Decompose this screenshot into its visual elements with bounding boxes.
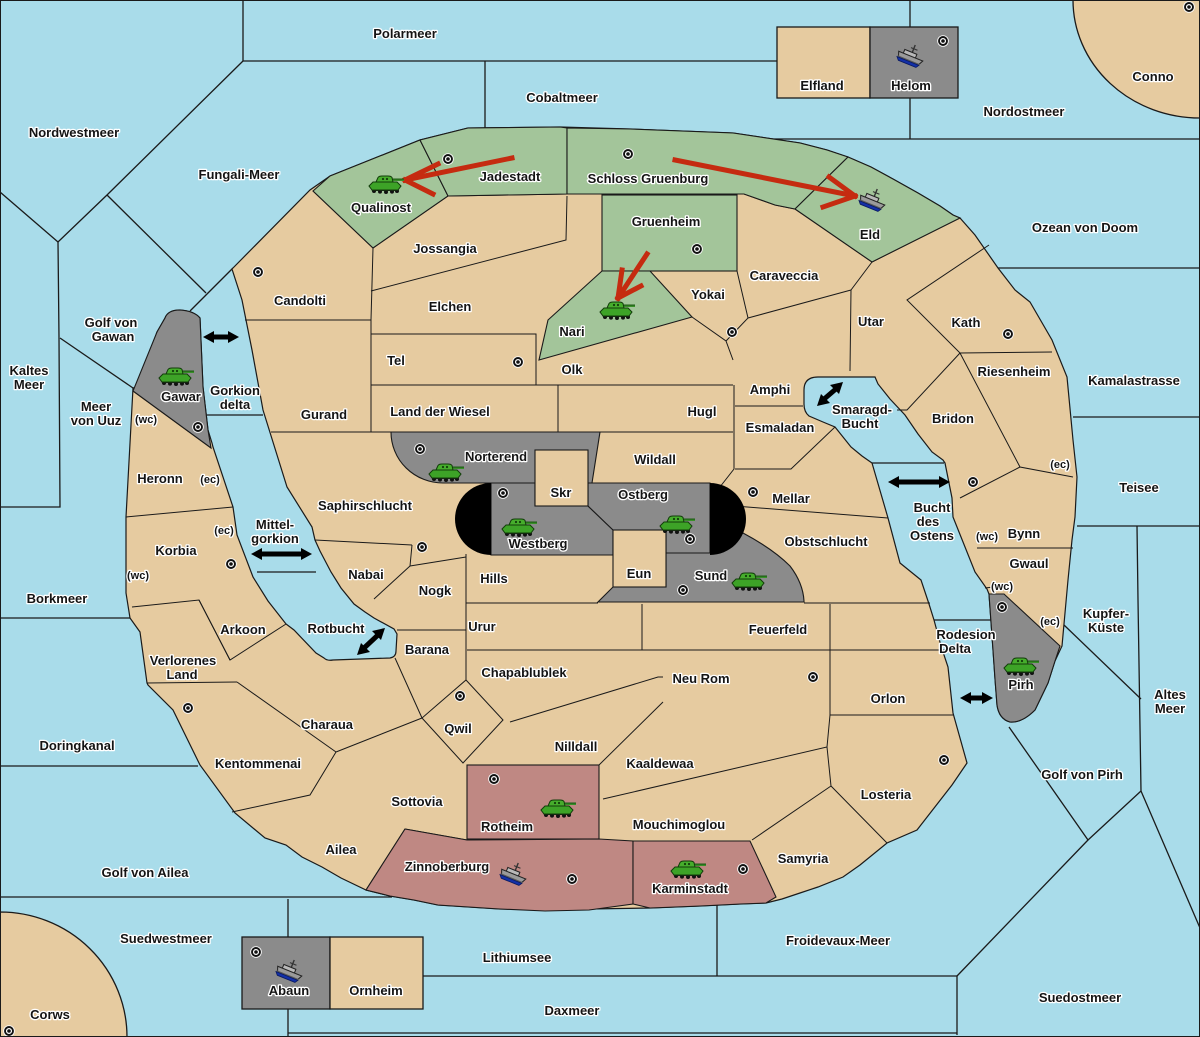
- svg-text:Gawan: Gawan: [92, 329, 135, 344]
- svg-text:Suedostmeer: Suedostmeer: [1039, 990, 1121, 1005]
- svg-text:Elchen: Elchen: [429, 299, 472, 314]
- svg-text:Olk: Olk: [562, 362, 584, 377]
- svg-text:Korbia: Korbia: [155, 543, 197, 558]
- svg-text:Land: Land: [166, 667, 197, 682]
- svg-text:Borkmeer: Borkmeer: [27, 591, 88, 606]
- svg-text:Nordwestmeer: Nordwestmeer: [29, 125, 119, 140]
- svg-text:Rodesion: Rodesion: [936, 627, 995, 642]
- svg-text:Land der Wiesel: Land der Wiesel: [390, 404, 490, 419]
- svg-text:Delta: Delta: [939, 641, 972, 656]
- svg-text:Ornheim: Ornheim: [349, 983, 402, 998]
- svg-text:Jossangia: Jossangia: [413, 241, 477, 256]
- svg-text:Ostens: Ostens: [910, 528, 954, 543]
- svg-text:(ec): (ec): [214, 525, 234, 537]
- svg-text:Obstschlucht: Obstschlucht: [784, 534, 868, 549]
- svg-text:Karminstadt: Karminstadt: [652, 881, 729, 896]
- svg-text:Amphi: Amphi: [750, 382, 790, 397]
- svg-text:Pirh: Pirh: [1008, 677, 1033, 692]
- svg-text:Kaaldewaa: Kaaldewaa: [626, 756, 694, 771]
- svg-text:Rotbucht: Rotbucht: [307, 621, 365, 636]
- svg-text:Cobaltmeer: Cobaltmeer: [526, 90, 598, 105]
- svg-text:Barana: Barana: [405, 642, 450, 657]
- svg-text:Froidevaux-Meer: Froidevaux-Meer: [786, 933, 890, 948]
- svg-text:Teisee: Teisee: [1119, 480, 1159, 495]
- svg-text:Kath: Kath: [952, 315, 981, 330]
- svg-text:Orlon: Orlon: [871, 691, 906, 706]
- svg-text:Bridon: Bridon: [932, 411, 974, 426]
- svg-text:Losteria: Losteria: [861, 787, 912, 802]
- svg-text:Abaun: Abaun: [269, 983, 310, 998]
- svg-text:Eun: Eun: [627, 566, 652, 581]
- svg-text:Schloss Gruenburg: Schloss Gruenburg: [588, 171, 709, 186]
- svg-text:Kupfer-: Kupfer-: [1083, 606, 1129, 621]
- svg-text:(wc): (wc): [127, 570, 149, 582]
- svg-text:Bucht: Bucht: [842, 416, 880, 431]
- svg-text:Qualinost: Qualinost: [351, 200, 412, 215]
- svg-text:Arkoon: Arkoon: [220, 622, 266, 637]
- svg-text:Corws: Corws: [30, 1007, 70, 1022]
- svg-text:Kaltes: Kaltes: [9, 363, 48, 378]
- svg-text:Eld: Eld: [860, 227, 880, 242]
- svg-text:Yokai: Yokai: [691, 287, 725, 302]
- svg-text:Sund: Sund: [695, 568, 728, 583]
- svg-text:Urur: Urur: [468, 619, 495, 634]
- svg-text:des: des: [917, 514, 939, 529]
- svg-text:Gorkion: Gorkion: [210, 383, 260, 398]
- svg-text:Saphirschlucht: Saphirschlucht: [318, 498, 413, 513]
- svg-text:(wc): (wc): [976, 531, 998, 543]
- svg-text:Westberg: Westberg: [509, 536, 568, 551]
- svg-text:Bucht: Bucht: [914, 500, 952, 515]
- svg-text:Küste: Küste: [1088, 620, 1124, 635]
- svg-text:Golf von Ailea: Golf von Ailea: [102, 865, 190, 880]
- svg-text:Ailea: Ailea: [325, 842, 357, 857]
- svg-text:Caraveccia: Caraveccia: [750, 268, 819, 283]
- svg-text:Lithiumsee: Lithiumsee: [483, 950, 552, 965]
- svg-text:Mittel-: Mittel-: [256, 517, 294, 532]
- svg-text:Feuerfeld: Feuerfeld: [749, 622, 808, 637]
- svg-text:Hugl: Hugl: [688, 404, 717, 419]
- svg-text:Nordostmeer: Nordostmeer: [984, 104, 1065, 119]
- svg-text:Gurand: Gurand: [301, 407, 347, 422]
- svg-text:Skr: Skr: [551, 485, 572, 500]
- svg-text:Daxmeer: Daxmeer: [545, 1003, 600, 1018]
- svg-text:Helom: Helom: [891, 78, 931, 93]
- svg-text:Mouchimoglou: Mouchimoglou: [633, 817, 725, 832]
- svg-text:Meer: Meer: [14, 377, 44, 392]
- svg-text:Rotheim: Rotheim: [481, 819, 533, 834]
- svg-text:Elfland: Elfland: [800, 78, 843, 93]
- svg-text:Tel: Tel: [387, 353, 405, 368]
- svg-text:Ostberg: Ostberg: [618, 487, 668, 502]
- svg-text:Nari: Nari: [559, 324, 584, 339]
- svg-text:Golf von Pirh: Golf von Pirh: [1041, 767, 1123, 782]
- svg-text:Golf von: Golf von: [85, 315, 138, 330]
- svg-text:Nogk: Nogk: [419, 583, 452, 598]
- svg-text:delta: delta: [220, 397, 251, 412]
- svg-text:(wc): (wc): [135, 414, 157, 426]
- svg-text:Verlorenes: Verlorenes: [150, 653, 217, 668]
- svg-text:Chapablublek: Chapablublek: [481, 665, 567, 680]
- svg-text:Gawar: Gawar: [161, 389, 201, 404]
- svg-text:Suedwestmeer: Suedwestmeer: [120, 931, 212, 946]
- svg-text:Utar: Utar: [858, 314, 884, 329]
- svg-text:Meer: Meer: [1155, 701, 1185, 716]
- svg-text:Norterend: Norterend: [465, 449, 527, 464]
- svg-text:Qwil: Qwil: [444, 721, 471, 736]
- svg-text:Riesenheim: Riesenheim: [978, 364, 1051, 379]
- svg-text:Meer: Meer: [81, 399, 111, 414]
- svg-text:Mellar: Mellar: [772, 491, 810, 506]
- svg-text:Kentommenai: Kentommenai: [215, 756, 301, 771]
- svg-text:Jadestadt: Jadestadt: [480, 169, 541, 184]
- svg-text:Sottovia: Sottovia: [391, 794, 443, 809]
- svg-text:Zinnoberburg: Zinnoberburg: [405, 859, 490, 874]
- svg-text:Hills: Hills: [480, 571, 507, 586]
- svg-text:(ec): (ec): [200, 474, 220, 486]
- svg-text:Heronn: Heronn: [137, 471, 183, 486]
- svg-text:Altes: Altes: [1154, 687, 1186, 702]
- svg-text:Gruenheim: Gruenheim: [632, 214, 701, 229]
- svg-text:Esmaladan: Esmaladan: [746, 420, 815, 435]
- svg-text:Gwaul: Gwaul: [1009, 556, 1048, 571]
- svg-text:Kamalastrasse: Kamalastrasse: [1088, 373, 1180, 388]
- svg-text:Smaragd-: Smaragd-: [832, 402, 892, 417]
- svg-text:Nabai: Nabai: [348, 567, 383, 582]
- svg-text:Doringkanal: Doringkanal: [39, 738, 114, 753]
- svg-text:Nilldall: Nilldall: [555, 739, 598, 754]
- svg-text:(ec): (ec): [1040, 616, 1060, 628]
- svg-text:Fungali-Meer: Fungali-Meer: [199, 167, 280, 182]
- svg-text:Bynn: Bynn: [1008, 526, 1041, 541]
- svg-text:Candolti: Candolti: [274, 293, 326, 308]
- svg-text:gorkion: gorkion: [251, 531, 299, 546]
- svg-text:von Uuz: von Uuz: [71, 413, 122, 428]
- svg-text:Neu Rom: Neu Rom: [672, 671, 729, 686]
- svg-text:Conno: Conno: [1132, 69, 1173, 84]
- svg-text:Samyria: Samyria: [778, 851, 829, 866]
- svg-text:Wildall: Wildall: [634, 452, 676, 467]
- svg-text:Polarmeer: Polarmeer: [373, 26, 437, 41]
- svg-text:Ozean von Doom: Ozean von Doom: [1032, 220, 1138, 235]
- svg-text:Charaua: Charaua: [301, 717, 354, 732]
- svg-text:(wc): (wc): [991, 581, 1013, 593]
- svg-text:(ec): (ec): [1050, 459, 1070, 471]
